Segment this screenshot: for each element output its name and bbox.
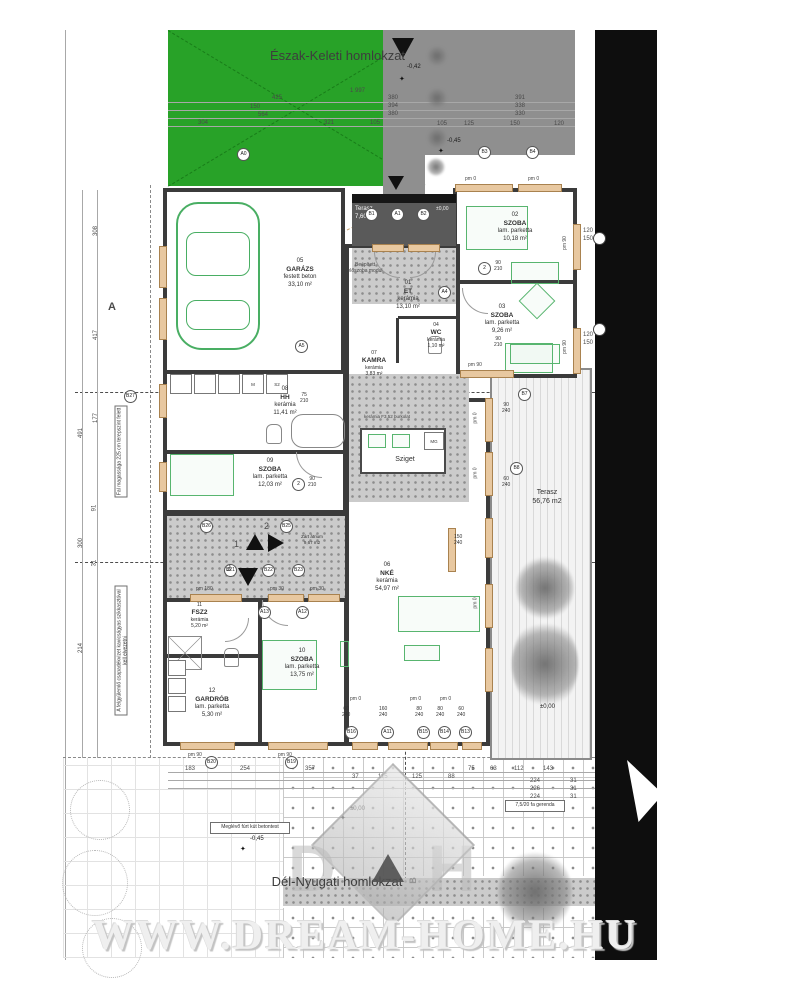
dimension-text: 308 <box>93 226 99 236</box>
window-height: 240 <box>502 482 510 488</box>
door-height: 240 <box>454 540 462 546</box>
room-label-kamra: 07 KAMRA kerámia 3,83 m² <box>348 350 400 378</box>
window-bar <box>159 384 167 418</box>
room-number: 09 <box>235 458 305 466</box>
window-bar <box>308 594 340 602</box>
room-area: 11,41 m² <box>255 410 315 418</box>
marker-a1: A1 <box>391 208 404 221</box>
island-sink <box>368 434 386 448</box>
room-name: ET <box>378 288 438 296</box>
window-bar <box>430 742 458 750</box>
marker-b13: B13 <box>459 726 472 739</box>
room-number: 03 <box>462 304 542 312</box>
window-height: 240 <box>379 712 387 718</box>
marker-b26: B26 <box>200 520 213 533</box>
marker-b25: B25 <box>280 520 293 533</box>
room-finish: lam. parketta <box>475 228 555 236</box>
well-note: Meglévő fúrt kút betontest <box>210 822 290 834</box>
bathtub <box>291 414 345 448</box>
dimension-text: 226 <box>530 786 540 792</box>
room-area: 5,20 m² <box>172 623 227 630</box>
room-label-szoba02: 02 SZOBA lam. parketta 10,18 m² <box>475 212 555 244</box>
rainwater-note: A felgyülemlő csapadékvizet kavicságyas … <box>115 586 128 716</box>
level-flag-icon: ✦ <box>399 76 405 83</box>
door-height: 210 <box>494 266 502 272</box>
dimension-text: 380 <box>388 111 398 117</box>
tree <box>427 88 447 108</box>
setback-dashed-line <box>150 185 151 758</box>
island-mg-box: MG <box>424 432 444 450</box>
dimension-text: 105 <box>437 121 447 127</box>
window-width: 60 <box>343 706 349 712</box>
dimension-text: 183 <box>185 766 195 772</box>
window-bar <box>485 452 493 496</box>
window-bar <box>388 742 428 750</box>
dimension-text: 120 <box>554 121 564 127</box>
room-name: SZOBA <box>262 656 342 664</box>
window-width: 90 <box>503 402 509 408</box>
window-height: 240 <box>342 712 350 718</box>
dimension-text: 150 <box>510 121 520 127</box>
dimension-text: 330 <box>515 111 525 117</box>
room-finish: lam. parketta <box>462 320 542 328</box>
window-size: 150 <box>583 340 593 346</box>
room-number: 10 <box>262 648 342 656</box>
toilet-hh <box>266 424 282 444</box>
car-windshield <box>186 232 250 276</box>
window-sill-label: pm 90 <box>188 752 202 758</box>
window-sill-label: pm 0 <box>410 696 421 702</box>
facade-title-northeast: Észak-Keleti homlokzat <box>240 48 435 63</box>
marker-b22: B22 <box>262 564 275 577</box>
dimension-text: 391 <box>515 95 525 101</box>
room-area: 3,83 m² <box>348 371 400 378</box>
entry-door-bar <box>408 244 440 252</box>
window-bar <box>159 298 167 340</box>
window-bar <box>455 184 513 192</box>
room-name: GARÁZS <box>255 266 345 274</box>
window-bar <box>159 246 167 288</box>
window-size: 120 <box>583 332 593 338</box>
dimension-text: 88 <box>448 774 455 780</box>
tree <box>512 618 578 710</box>
level-label: -0,42 <box>407 64 421 70</box>
window-sill-label: pm 90 <box>562 236 568 250</box>
dimension-text: 564 <box>258 112 268 118</box>
window-bar <box>460 370 514 378</box>
car-rear-window <box>186 300 250 330</box>
dimension-text: 254 <box>240 766 250 772</box>
room-number: 06 <box>352 562 422 570</box>
atrium-label: Zárt átrium 9,67 m2 <box>282 534 342 546</box>
dimension-text: 63 <box>490 766 497 772</box>
window-bar <box>518 184 562 192</box>
section-triangle-2-icon <box>268 534 284 552</box>
room-label-garage: 05 GARÁZS festett beton 33,10 m² <box>255 258 345 290</box>
dimension-text: 214 <box>78 643 84 653</box>
marker-b23: B23 <box>292 564 305 577</box>
door-size: 75 210 <box>300 392 308 405</box>
level-label: -0,45 <box>250 836 264 842</box>
beam-note: 7,5/20 fa gerenda <box>505 800 565 812</box>
watermark-text: WWW.DREAM-HOME.HU <box>92 912 638 960</box>
window-bar <box>190 594 242 602</box>
room-name: WC <box>414 329 458 337</box>
stone-finish-note: kerámia F3,52 burkolat <box>352 414 422 419</box>
sofa <box>511 262 559 284</box>
tree <box>427 158 445 176</box>
section-number-3: 3 <box>226 564 231 573</box>
sofa-nke <box>404 645 440 661</box>
dimension-text: 304 <box>198 120 208 126</box>
dimension-line <box>168 118 575 119</box>
window-sill-label: pm 0 <box>473 412 479 423</box>
window-sill-label: pm 0 <box>473 597 479 608</box>
dimension-text: 224 <box>530 778 540 784</box>
window-bar <box>573 224 581 270</box>
dimension-text: 417 <box>93 330 99 340</box>
wardrobe-shelf <box>168 660 186 676</box>
window-size: 60 240 <box>457 706 465 719</box>
room-finish: lam. parketta <box>172 704 252 712</box>
marker-a13: A13 <box>258 606 271 619</box>
room-area: 13,75 m² <box>262 672 342 680</box>
marker-b15: B15 <box>417 726 430 739</box>
marker-a4: A4 <box>438 286 451 299</box>
dimension-line <box>168 110 575 111</box>
room-name: NKÉ <box>352 570 422 578</box>
room-label-gardrob: 12 GARDRÓB lam. parketta 5,30 m² <box>172 688 252 720</box>
window-width: 80 <box>416 706 422 712</box>
room-finish: festett beton <box>255 274 345 282</box>
bed-szoba09 <box>170 454 234 496</box>
marker-b2: B2 <box>417 208 430 221</box>
window-bar <box>485 648 493 692</box>
window-sill-label: pm 180 <box>196 586 213 592</box>
window-size: 60 240 <box>502 476 510 489</box>
window-bar <box>462 742 482 750</box>
dimension-text: 37 <box>352 774 359 780</box>
counter-unit <box>170 374 192 394</box>
logo-triangle-icon <box>372 854 404 882</box>
window-sill-label: pm 30 <box>270 586 284 592</box>
marker-b27: B27 <box>124 390 137 403</box>
marker-a11: A11 <box>381 726 394 739</box>
dimension-line <box>168 102 575 103</box>
dimension-text: 394 <box>388 103 398 109</box>
boundary-dot <box>593 232 606 245</box>
island-hob <box>392 434 410 448</box>
dimension-text: 150 <box>250 104 260 110</box>
window-size: 160 240 <box>379 706 387 719</box>
dimension-text: 321 <box>324 120 334 126</box>
marker-b14: B14 <box>438 726 451 739</box>
tree-outline <box>70 780 130 840</box>
window-sill-label: pm 30 <box>310 586 324 592</box>
room-label-fsz2: 11 FSZ2 kerámia 5,20 m² <box>172 602 227 630</box>
dimension-text: 1 997 <box>350 88 365 94</box>
window-sill-label: pm 90 <box>562 340 568 354</box>
dimension-text: 105 <box>370 120 380 126</box>
window-sill-label: pm 0 <box>465 176 476 182</box>
toilet-fsz2 <box>224 648 239 667</box>
window-bar <box>352 742 378 750</box>
door-height: 210 <box>308 482 316 488</box>
atrium-area: 9,67 m2 <box>282 540 342 546</box>
level-flag-icon: ✦ <box>438 148 444 155</box>
entry-module-note: Beépített előszoba modul <box>347 262 383 274</box>
window-bar <box>180 742 235 750</box>
window-bar <box>573 328 581 374</box>
room-finish: lam. parketta <box>262 664 342 672</box>
marker-b20: B20 <box>205 756 218 769</box>
dimension-text: 143 <box>543 766 553 772</box>
dimension-text: 357 <box>305 766 315 772</box>
door-width: 90 <box>495 336 501 342</box>
room-number: 02 <box>475 212 555 220</box>
window-size: 150 <box>583 236 593 242</box>
marker-door-2: 2 <box>292 478 305 491</box>
window-size: 80 240 <box>415 706 423 719</box>
marker-b16: B16 <box>345 726 358 739</box>
dimension-text: 31 <box>91 560 97 567</box>
dimension-line <box>97 190 98 758</box>
marker-b3: B3 <box>478 146 491 159</box>
window-size: 80 240 <box>436 706 444 719</box>
dimension-text: 125 <box>464 121 474 127</box>
door-width: 150 <box>454 534 462 540</box>
car-icon <box>176 202 260 350</box>
marker-a0: A0 <box>237 148 250 161</box>
room-finish: kerámia <box>378 296 438 304</box>
window-width: 60 <box>458 706 464 712</box>
boundary-dot <box>593 323 606 336</box>
room-area: 5,30 m² <box>172 712 252 720</box>
marker-b4: B4 <box>526 146 539 159</box>
driveway-block <box>425 30 575 155</box>
room-finish: kerámia <box>352 578 422 586</box>
road-black-strip <box>595 30 657 960</box>
door-size: 90 210 <box>494 260 502 273</box>
window-width: 160 <box>379 706 387 712</box>
window-bar <box>159 462 167 492</box>
site-plan-page: Észak-Keleti homlokzat A0 -0,42 ✦ 1 997 … <box>0 0 794 993</box>
dimension-text: 91 <box>91 505 97 512</box>
room-number: 01 <box>378 280 438 288</box>
window-height: 240 <box>457 712 465 718</box>
door-height: 210 <box>494 342 502 348</box>
window-size: 90 240 <box>502 402 510 415</box>
dimension-text: 31 <box>570 794 577 800</box>
marker-b7: B7 <box>518 388 531 401</box>
section-triangle-1-icon <box>246 534 264 550</box>
room-label-wc: 04 WC kerámia 1,10 m² <box>414 322 458 350</box>
deck-terrace-label: Terasz 56,76 m2 <box>512 488 582 506</box>
room-name: SZOBA <box>235 466 305 474</box>
window-size: 120 <box>583 228 593 234</box>
dimension-text: 338 <box>515 103 525 109</box>
counter-unit <box>194 374 216 394</box>
marker-a5: A5 <box>295 340 308 353</box>
room-label-et: 01 ET kerámia 13,10 m² <box>378 280 438 312</box>
room-area: 13,10 m² <box>378 304 438 312</box>
door-width: 90 <box>309 476 315 482</box>
deck-furniture <box>510 344 560 364</box>
door-size: 150 240 <box>454 534 462 547</box>
window-sill-label: pm 0 <box>350 696 361 702</box>
terrace-name: Terasz <box>512 488 582 497</box>
dining-table <box>398 596 480 632</box>
room-number: 12 <box>172 688 252 696</box>
marker-b8: B8 <box>510 462 523 475</box>
window-bar <box>268 742 328 750</box>
window-bar <box>485 518 493 558</box>
door-width: 90 <box>495 260 501 266</box>
marker-b1: B1 <box>365 208 378 221</box>
room-area: 9,26 m² <box>462 328 542 336</box>
window-sill-label: pm 0 <box>528 176 539 182</box>
north-arrow-icon <box>627 760 663 822</box>
entry-door-bar <box>372 244 404 252</box>
dimension-text: 75 <box>468 766 475 772</box>
dimension-text: 425 <box>272 95 282 101</box>
section-triangle-entry-icon <box>388 176 404 190</box>
level-label: ±0,00 <box>540 704 555 710</box>
dimension-text: 491 <box>78 428 84 438</box>
room-area: 54,97 m² <box>352 586 422 594</box>
dimension-text: 380 <box>388 95 398 101</box>
room-name: SZOBA <box>462 312 542 320</box>
terrace-area: 56,76 m2 <box>512 497 582 506</box>
room-label-nke: 06 NKÉ kerámia 54,97 m² <box>352 562 422 594</box>
terrace-edge <box>352 194 456 203</box>
room-name: FSZ2 <box>172 609 227 617</box>
tree <box>516 556 574 620</box>
section-number-1: 1 <box>234 540 239 549</box>
marker-b19: B19 <box>285 756 298 769</box>
section-letter-a: A <box>108 302 116 313</box>
counter-unit <box>218 374 240 394</box>
dimension-text: 112 <box>514 766 524 772</box>
door-size: 90 210 <box>308 476 316 489</box>
tree <box>427 128 447 148</box>
window-height: 240 <box>502 408 510 414</box>
window-bar <box>485 398 493 442</box>
wall-divider <box>398 316 458 319</box>
room-label-szoba03: 03 SZOBA lam. parketta 9,26 m² <box>462 304 542 336</box>
level-label: -0,45 <box>447 138 461 144</box>
level-flag-icon: ✦ <box>240 846 246 853</box>
tree-outline <box>62 850 128 916</box>
level-label: ±0,00 <box>436 206 448 212</box>
island-label: Sziget <box>365 455 445 464</box>
section-triangle-3-icon <box>238 568 258 586</box>
room-area: 1,10 m² <box>414 343 458 350</box>
room-area: 10,18 m² <box>475 236 555 244</box>
dimension-line <box>82 190 83 758</box>
dimension-text: 31 <box>570 786 577 792</box>
dimension-text: 300 <box>78 538 84 548</box>
marker-door-2: 2 <box>478 262 491 275</box>
marker-a12: A12 <box>296 606 309 619</box>
window-sill-label: pm 0 <box>440 696 451 702</box>
window-sill-label: pm 0 <box>473 467 479 478</box>
room-label-szoba10: 10 SZOBA lam. parketta 13,75 m² <box>262 648 342 680</box>
room-name: SZOBA <box>475 220 555 228</box>
dimension-text: 31 <box>570 778 577 784</box>
section-number-2: 2 <box>264 522 269 531</box>
room-area: 33,10 m² <box>255 282 345 290</box>
room-number: 05 <box>255 258 345 266</box>
room-name: GARDRÓB <box>172 696 252 704</box>
wall-height-note: Fal magassága 225 cm terepszint felett <box>115 406 128 498</box>
window-size: 60 240 <box>342 706 350 719</box>
window-sill-label: pm 90 <box>468 362 482 368</box>
window-width: 80 <box>437 706 443 712</box>
door-size: 90 210 <box>494 336 502 349</box>
door-height: 210 <box>300 398 308 404</box>
door-width: 75 <box>301 392 307 398</box>
dimension-text: 177 <box>93 413 99 423</box>
room-name: KAMRA <box>348 357 400 365</box>
dimension-text: 125 <box>412 774 422 780</box>
window-height: 240 <box>436 712 444 718</box>
window-width: 60 <box>503 476 509 482</box>
window-height: 240 <box>415 712 423 718</box>
window-bar <box>485 584 493 628</box>
